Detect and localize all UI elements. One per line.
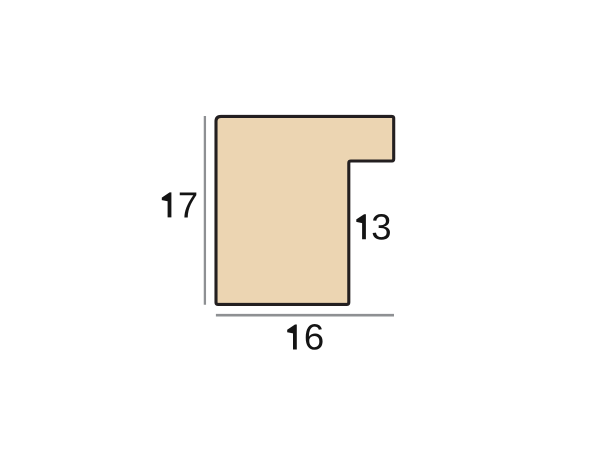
svg-text:7: 7 <box>178 185 198 226</box>
svg-text:3: 3 <box>371 206 391 247</box>
svg-text:6: 6 <box>304 317 324 358</box>
